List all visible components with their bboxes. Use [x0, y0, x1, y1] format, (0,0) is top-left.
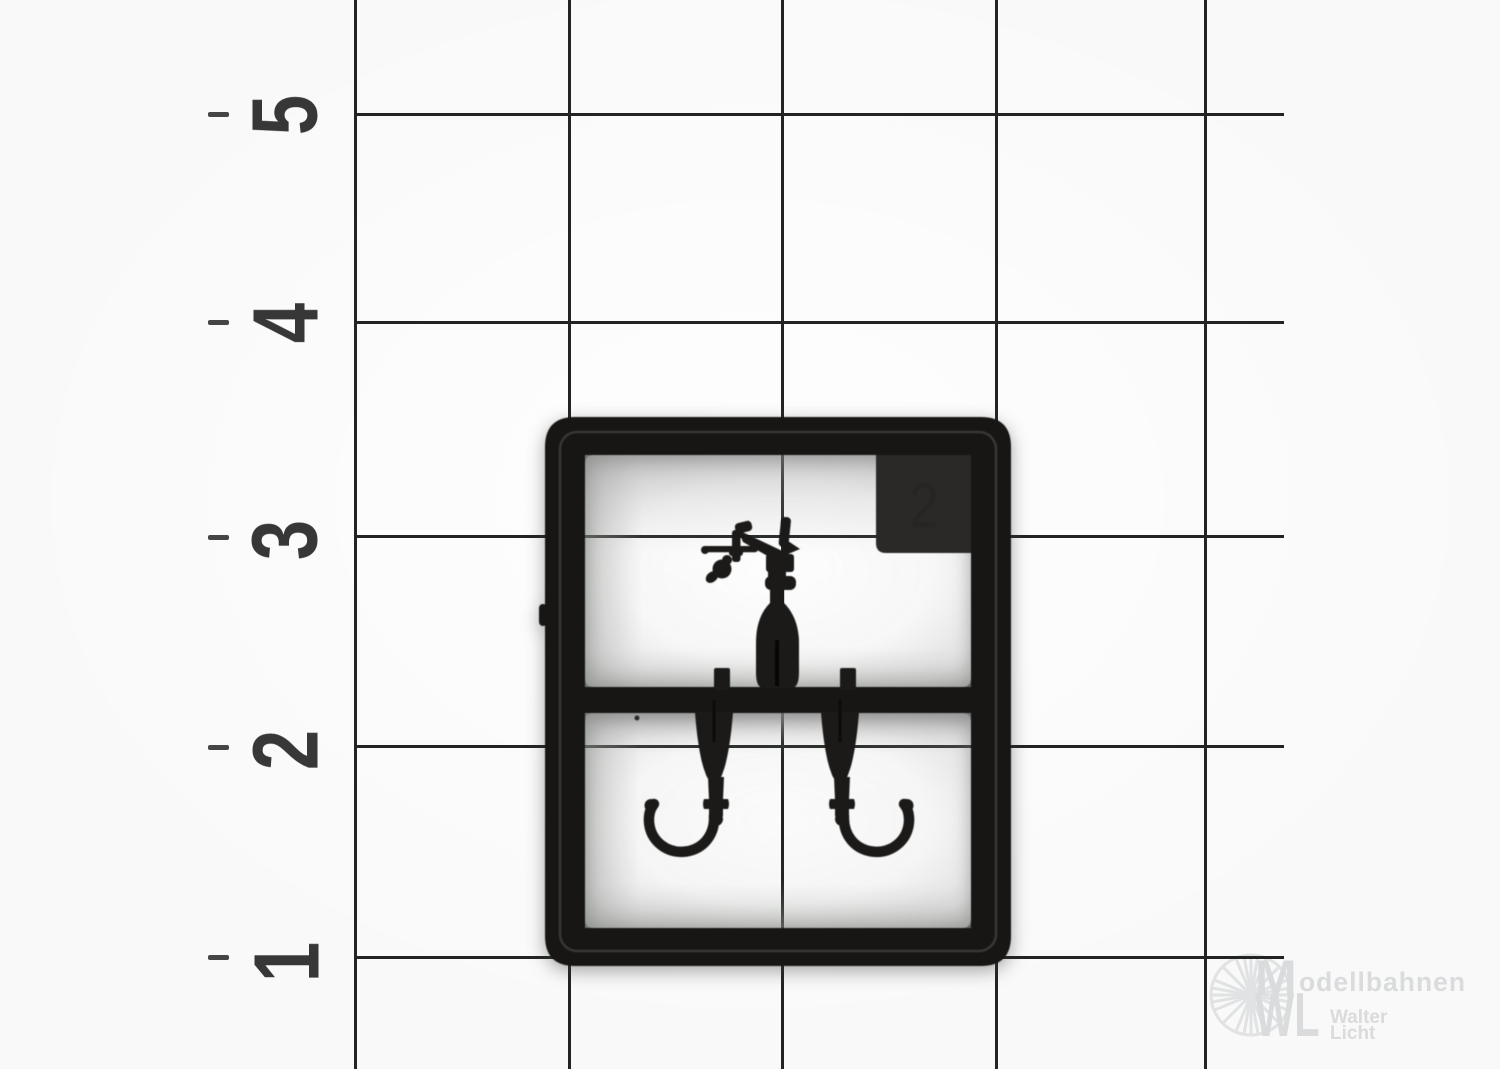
- svg-text:2: 2: [909, 471, 939, 541]
